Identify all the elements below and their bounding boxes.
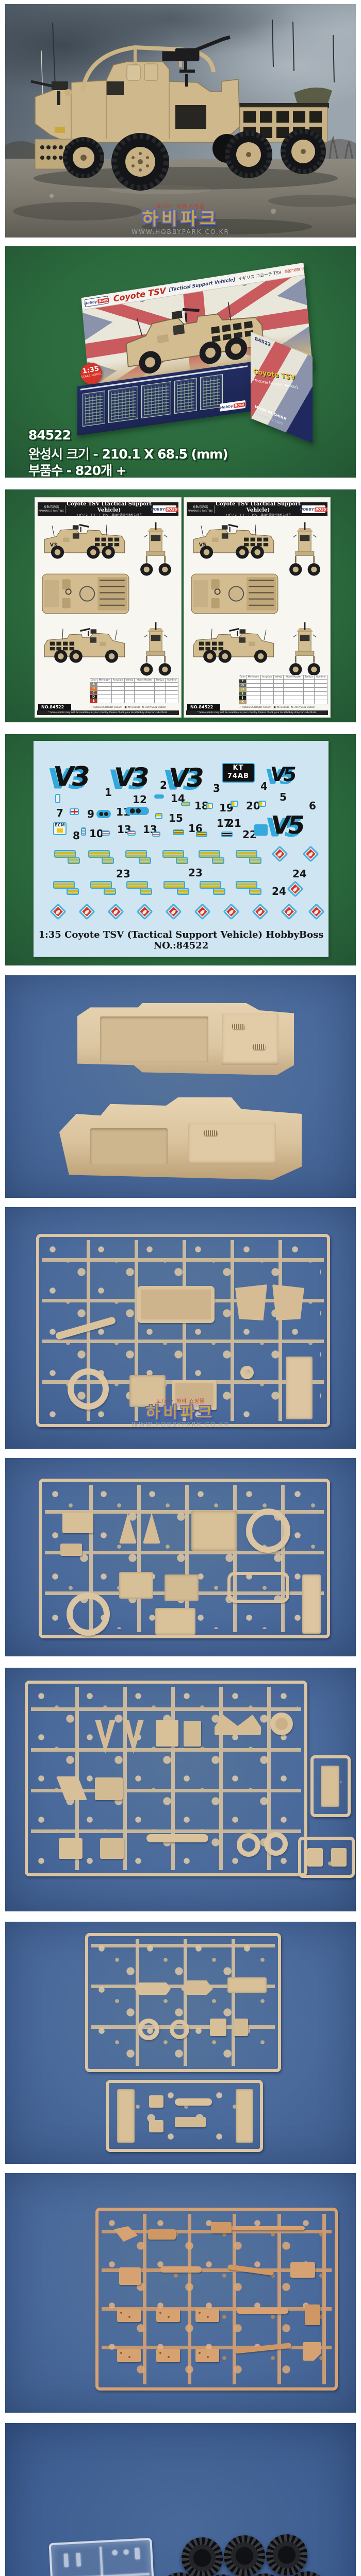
sprue-part [172, 1380, 217, 1410]
clear-part [64, 2553, 69, 2567]
guide-tag: 标贴与涂装MARKING & PAINTING [38, 505, 65, 513]
decal-hazard-diamond [271, 845, 288, 862]
sprue-part [155, 1608, 195, 1635]
decal-number: 24 [272, 885, 286, 897]
decal-item [206, 803, 213, 809]
decal-number: 24 [292, 868, 307, 880]
parts-thumbnail [174, 378, 197, 414]
rubber-tire [182, 2537, 223, 2576]
sprue-part [135, 1982, 171, 1995]
logo-hobby: Hobby [220, 404, 233, 410]
plate-line1: KT [223, 764, 254, 772]
decal-stencil [90, 881, 112, 889]
decal-number: 15 [169, 812, 183, 824]
col-header: Color [239, 675, 247, 680]
sprue-part [129, 1375, 166, 1407]
paint-row-id: E [90, 699, 97, 703]
decal-stencil [54, 850, 76, 858]
guide-footer-note: * Some paints may not be available in yo… [186, 710, 328, 715]
guide-footer-note: * Some paints may not be available in yo… [37, 710, 179, 715]
decal-item [155, 813, 162, 819]
decal-item [231, 801, 238, 807]
decal-number: 8 [73, 829, 80, 842]
decal-item [221, 832, 233, 837]
col-header: Color [90, 679, 97, 683]
paint-row-id: H [239, 688, 247, 692]
decal-stencil [199, 850, 220, 858]
paint-color-table: ColorMr.HobbyAcrysionVallejoModel Master… [90, 678, 178, 703]
parts-thumbnail [83, 391, 105, 427]
logo-boss: BOSS [166, 507, 178, 512]
logo-hobby: Hobby [84, 299, 97, 306]
sprue-part [175, 2117, 206, 2127]
decal-number: 12 [133, 793, 147, 806]
rubber-tire [224, 2535, 265, 2576]
hobbyboss-logo-front: HobbyBoss [220, 400, 245, 412]
hull-vent [204, 1130, 217, 1136]
decal-hazard-diamond [78, 903, 95, 920]
hull-deck [188, 1123, 276, 1164]
sprue-part [227, 1977, 267, 1993]
decal-stencil [53, 881, 75, 889]
col-header: Mr.Hobby [97, 679, 112, 683]
sprue-photo-d [5, 1668, 356, 1911]
decal-checker [254, 824, 268, 836]
decal-hazard-diamond [107, 903, 124, 920]
decal-dash-panel [125, 807, 149, 815]
col-header: Vallejo [273, 675, 284, 680]
col-header: Tamiya [155, 679, 166, 683]
sprue-ring-part [246, 1509, 290, 1553]
decal-stencil [88, 850, 110, 858]
sprue-parts-texture [94, 1942, 272, 2063]
logo-hobby: HOBBY [151, 507, 165, 512]
sprue-part [210, 2019, 226, 2036]
paint-row-id: B [90, 687, 97, 691]
guide-legend: H: AQUEOUS HOBBY COLOR ■: Mr.COLOR N: AC… [239, 706, 315, 709]
col-header: Vallejo [124, 679, 135, 683]
guide-legend: H: AQUEOUS HOBBY COLOR ■: Mr.COLOR N: AC… [90, 706, 166, 709]
guide-front-view-2 [140, 620, 172, 679]
decal-stencil [200, 881, 221, 889]
clear-part [112, 2550, 118, 2555]
sprue-part [148, 2229, 176, 2240]
paint-row-id: J [239, 696, 247, 700]
logo-boss: Boss [234, 402, 245, 408]
col-header: Model Master [135, 679, 155, 683]
guide-side-view-2 [41, 625, 128, 668]
decal-stencil [125, 850, 147, 858]
decal-number: 6 [309, 800, 316, 812]
col-header: Humbrol [314, 675, 327, 680]
vehicle-render-photo: 도/스매 하비 쇼핑몰 하비파크 WWW.HOBBYPARK.CO.KR [5, 4, 356, 238]
guide-header: 标贴与涂装MARKING & PAINTING Coyote TSV (Tact… [187, 502, 327, 516]
hull-parts-photo [5, 975, 356, 1198]
sprue-frame [85, 1933, 281, 2072]
sprue-part [302, 1574, 321, 1634]
decal-hazard-diamond [308, 903, 325, 920]
decal-item [152, 832, 160, 837]
ecm-text: ECM [54, 823, 65, 828]
guide-tag: 标贴与涂装MARKING & PAINTING [187, 505, 215, 513]
ammo-plate-part [156, 2309, 180, 2322]
guide-front-view [140, 520, 172, 579]
decal-grille [81, 827, 86, 836]
decal-stencil [162, 850, 184, 858]
sprue-ring-part [138, 2019, 159, 2040]
sprue-ring-part [67, 1592, 110, 1636]
decal-hazard-diamond [281, 903, 298, 920]
listing-size: 완성시 크기 - 210.1 X 68.5 (mm) [28, 444, 228, 463]
sprue-photo-c [5, 1458, 356, 1656]
hull-lower-part [59, 1097, 302, 1180]
plate-line2: 74AB [223, 772, 254, 781]
decal-sheet-photo: 1 2 3 KT 74AB 4 5 6 7 9 11 12 14 15 18 1… [5, 734, 356, 965]
sprue-frame [106, 2080, 263, 2152]
decal-license-plate: KT 74AB [222, 763, 255, 783]
guide-subtitle: イギリス コヨーテ TSV 英国“郊狼”战术支援车 [65, 514, 153, 517]
wheel-hub-part [237, 1833, 260, 1857]
sprue-part [227, 1572, 289, 1603]
decal-stencil [236, 881, 257, 889]
guide-kit-number: NO.84522 [38, 704, 71, 710]
decal-hazard-diamond [165, 903, 182, 920]
decal-hazard-diamond [50, 903, 67, 920]
sprue-part [240, 1366, 254, 1379]
sprue-part [137, 1286, 215, 1323]
guide-title: Coyote TSV (Tactical Support Vehicle) [65, 501, 153, 514]
sprue-part [236, 2089, 253, 2143]
guide-page-1: 标贴与涂装MARKING & PAINTING Coyote TSV (Tact… [35, 498, 181, 717]
hull-vent [232, 1024, 244, 1029]
sprue-part [321, 1766, 339, 1807]
hull-recess [90, 1128, 168, 1164]
clear-runner [57, 2573, 150, 2576]
sprue-part [307, 1848, 323, 1867]
sprue-part [60, 1544, 82, 1556]
box-subtitle-cn: 英国“郊狼”战术支援车 [284, 264, 304, 275]
ammo-plate-part [195, 2349, 219, 2362]
sprue-part [331, 1848, 347, 1867]
sprue-part [170, 2020, 189, 2039]
sprue-part [184, 1721, 201, 1747]
decal-item [258, 801, 266, 807]
paint-color-table: ColorMr.HobbyAcrysionVallejoModel Master… [239, 675, 327, 704]
machine-gun-part [211, 2222, 232, 2233]
tires-photo [5, 2423, 356, 2576]
sprue-part [290, 2262, 315, 2278]
wheel-hub-part [264, 1832, 288, 1856]
sprue-photo-f [5, 2173, 356, 2413]
col-header: Humbrol [165, 679, 178, 683]
paint-row-id: C [90, 691, 97, 695]
hull-deck [222, 1013, 278, 1065]
listing-sku: 84522 [28, 428, 71, 443]
sprue-part [165, 1574, 199, 1601]
logo-boss: Boss [97, 297, 109, 303]
guide-front-view [289, 520, 321, 579]
listing-parts: 부품수 - 820개 + [28, 461, 126, 478]
sprue-part [191, 1511, 237, 1551]
col-header: Tamiya [304, 675, 315, 680]
decal-hazard-diamond [194, 903, 211, 920]
decal-sheet: 1 2 3 KT 74AB 4 5 6 7 9 11 12 14 15 18 1… [34, 741, 329, 957]
decal-england-flag [70, 808, 79, 815]
sprue-side-frame [310, 1755, 351, 1817]
hull-recess [100, 1016, 208, 1062]
decal-number: 21 [227, 817, 241, 829]
decal-number: 3 [213, 782, 220, 794]
ammo-plate-part [117, 2309, 141, 2322]
sprue-photo-b: 도/스매 하비 쇼핑몰 하비파크 WWW.HOBBYPARK.CO.KR [5, 1207, 356, 1449]
paint-row-id: K [239, 700, 247, 704]
painting-guide-photo: 标贴与涂装MARKING & PAINTING Coyote TSV (Tact… [5, 489, 356, 722]
decal-hazard-diamond [136, 903, 153, 920]
hobbyboss-logo: HobbyBoss [85, 296, 109, 307]
sprue-part [119, 1572, 153, 1599]
sprue-part [149, 2120, 163, 2132]
clear-runner [100, 2547, 105, 2576]
col-header: Acrysion [111, 679, 124, 683]
guide-front-view-2 [289, 620, 321, 679]
sprue-part [270, 1713, 293, 1735]
sprue-part [119, 2267, 141, 2285]
weapons-sprue-frame [95, 2208, 338, 2391]
guide-top-view [188, 570, 281, 618]
decal-item [173, 829, 184, 835]
guide-kit-number: NO.84522 [187, 704, 220, 710]
logo-boss: BOSS [315, 507, 327, 512]
decal-stencil [163, 881, 185, 889]
col-header: Model Master [284, 675, 304, 680]
sprue-part [62, 1513, 93, 1533]
decal-hazard-diamond [302, 845, 319, 862]
decal-gauges [96, 810, 111, 818]
guide-tag-en: MARKING & PAINTING [187, 510, 214, 513]
sprue-side-frame [298, 1837, 355, 1878]
decal-number: 7 [56, 807, 63, 819]
decal-item [181, 802, 190, 806]
sprue-frame [36, 1234, 330, 1427]
machine-gun-part [237, 2308, 288, 2314]
paint-row-id: F [239, 680, 247, 684]
clear-part [76, 2553, 81, 2566]
decal-hazard-diamond [223, 903, 240, 920]
decal-number: 9 [87, 808, 94, 820]
ammo-plate-part [117, 2349, 141, 2362]
sprue-part [234, 2019, 248, 2036]
clear-part [135, 2548, 140, 2559]
hobbyboss-logo: HOBBYBOSS [302, 505, 325, 513]
sprue-part [149, 2095, 163, 2108]
sprue-part [156, 1720, 178, 1747]
sprue-part [175, 2098, 212, 2106]
parts-thumbnail [141, 381, 171, 418]
guide-tag-en: MARKING & PAINTING [38, 510, 65, 513]
sprue-part [100, 1838, 124, 1859]
sprue-part [146, 1834, 208, 1842]
sprue-part [305, 2304, 320, 2325]
parts-thumbnail [108, 386, 138, 423]
sprue-photo-e [5, 1922, 356, 2164]
sprue-part [235, 1284, 267, 1320]
decal-hazard-diamond [287, 880, 304, 897]
decal-stencil [126, 881, 148, 889]
decal-number: 23 [116, 868, 130, 880]
box-title-jp: イギリス コヨーテ TSV [238, 269, 281, 282]
sprue-parts-texture [115, 2089, 254, 2143]
sprue-ring-part [68, 1368, 109, 1410]
decal-number: 23 [188, 867, 203, 879]
decal-item [55, 794, 60, 803]
guide-title: Coyote TSV (Tactical Support Vehicle) [215, 501, 302, 514]
sprue-part [59, 1838, 83, 1859]
hull-vent [253, 1044, 265, 1049]
box-subtitle: [Tactical Support Vehicle] [169, 277, 235, 293]
box-title: Coyote TSV [113, 285, 166, 303]
clear-parts-sprue [48, 2538, 155, 2576]
ecm-warning [57, 828, 63, 833]
ammo-plate-part [156, 2349, 180, 2362]
paint-row-id: I [239, 692, 247, 696]
svg-text:V3: V3 [50, 542, 57, 548]
guide-side-view-2 [190, 625, 277, 668]
decal-caption: 1:35 Coyote TSV (Tactical Support Vehicl… [34, 929, 329, 951]
box-art-photo: HobbyBoss Coyote TSV [Tactical Support V… [5, 246, 356, 478]
hull-upper-part [77, 1003, 294, 1075]
col-header: Acrysion [260, 675, 273, 680]
guide-side-view: V5 [190, 521, 277, 564]
rubber-tire [266, 2534, 307, 2575]
vehicle-illustration [5, 4, 356, 238]
sprue-part [272, 1284, 304, 1320]
svg-text:V5: V5 [199, 542, 206, 548]
paint-row-id: A [90, 683, 97, 687]
sprue-part [160, 2266, 202, 2273]
guide-tag-cn: 标贴与涂装 [187, 505, 214, 510]
sprue-frame [39, 1479, 330, 1638]
decal-item [102, 831, 110, 836]
ammo-plate-part [195, 2309, 219, 2322]
guide-header: 标贴与涂装MARKING & PAINTING Coyote TSV (Tact… [38, 502, 178, 516]
guide-subtitle: イギリス コヨーテ TSV 英国“郊狼”战术支援车 [215, 514, 302, 517]
paint-row-id: D [90, 695, 97, 699]
guide-page-2: 标贴与涂装MARKING & PAINTING Coyote TSV (Tact… [184, 498, 330, 717]
col-header: Mr.Hobby [247, 675, 261, 680]
logo-hobby: HOBBY [300, 507, 314, 512]
guide-side-view: V3 [41, 521, 128, 564]
decal-number: 5 [280, 791, 287, 803]
decal-item [154, 794, 164, 799]
decal-hazard-diamond [252, 903, 269, 920]
kit-box: HobbyBoss Coyote TSV [Tactical Support V… [71, 267, 318, 427]
decal-stencil [236, 850, 257, 858]
guide-top-view [39, 570, 132, 618]
sprue-part [286, 1357, 313, 1419]
sprue-part [95, 1777, 123, 1800]
sprue-frame [25, 1681, 307, 1876]
paint-row-id: G [239, 684, 247, 688]
guide-tag-cn: 标贴与涂装 [38, 505, 65, 510]
hobbyboss-logo: HOBBYBOSS [153, 505, 176, 513]
decal-ecm-label: ECM [53, 822, 67, 835]
decal-item [196, 832, 207, 837]
decal-item [127, 831, 136, 836]
sprue-part [117, 2089, 135, 2143]
clear-part [123, 2549, 129, 2555]
